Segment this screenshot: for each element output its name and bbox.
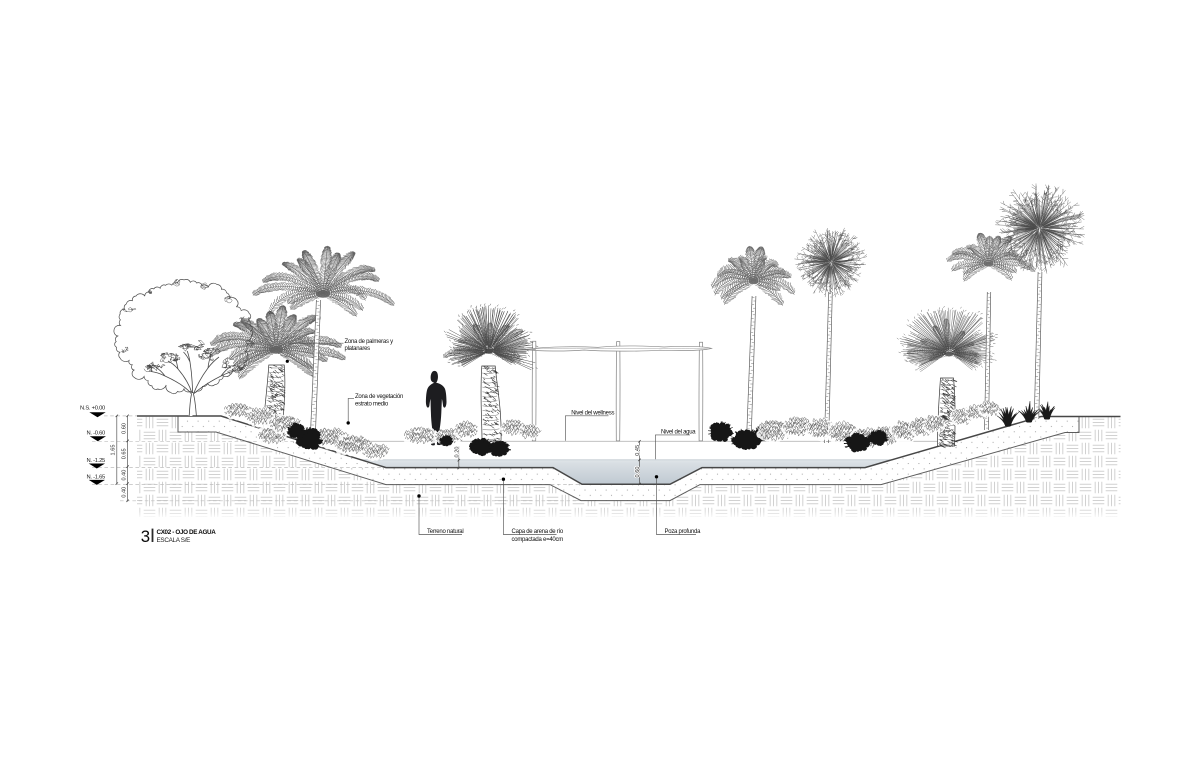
svg-text:ESCALA S/E: ESCALA S/E — [157, 537, 191, 544]
svg-text:0.20: 0.20 — [455, 447, 461, 458]
svg-text:0.45: 0.45 — [635, 445, 641, 456]
svg-text:N.S. +0.00: N.S. +0.00 — [80, 405, 105, 411]
svg-text:N. -0.60: N. -0.60 — [86, 430, 105, 436]
svg-text:0.60: 0.60 — [635, 467, 641, 478]
svg-text:platanares: platanares — [345, 346, 371, 352]
svg-text:Nivel del agua: Nivel del agua — [661, 430, 696, 436]
svg-text:Zona de palmeras y: Zona de palmeras y — [345, 339, 394, 345]
svg-text:0.60: 0.60 — [121, 423, 127, 434]
svg-text:1.65: 1.65 — [111, 445, 117, 456]
svg-text:Poza profunda: Poza profunda — [665, 529, 702, 535]
svg-text:Terreno natural: Terreno natural — [427, 529, 463, 535]
svg-text:0.40: 0.40 — [121, 487, 127, 498]
svg-text:3: 3 — [141, 527, 150, 546]
svg-text:0.40: 0.40 — [121, 470, 127, 481]
svg-text:0.65: 0.65 — [121, 448, 127, 459]
svg-text:estrato medio: estrato medio — [355, 401, 389, 407]
svg-text:N. -1.25: N. -1.25 — [86, 458, 105, 464]
svg-text:N. -1.65: N. -1.65 — [86, 475, 105, 481]
svg-text:compactada e=40cm: compactada e=40cm — [512, 537, 564, 543]
svg-text:Capa de arena de río: Capa de arena de río — [512, 529, 564, 535]
svg-text:Nivel del wellness: Nivel del wellness — [571, 410, 614, 416]
svg-text:Zona de vegetación: Zona de vegetación — [355, 394, 403, 400]
svg-text:CX02 - OJO DE AGUA: CX02 - OJO DE AGUA — [157, 529, 217, 536]
